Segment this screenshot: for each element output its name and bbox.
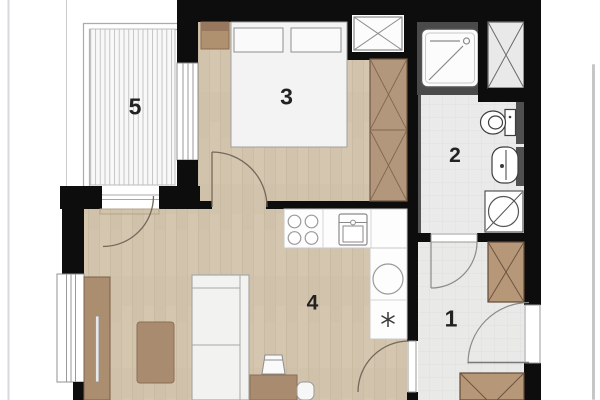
svg-text:5: 5 xyxy=(129,94,142,120)
svg-text:3: 3 xyxy=(280,84,293,110)
svg-text:4: 4 xyxy=(307,292,319,315)
svg-text:1: 1 xyxy=(445,306,458,332)
svg-text:2: 2 xyxy=(449,144,461,167)
